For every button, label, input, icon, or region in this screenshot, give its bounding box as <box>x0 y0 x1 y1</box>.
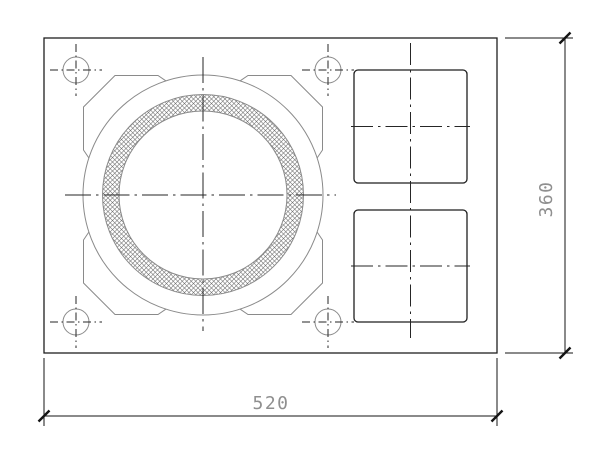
dimension-height: 360 <box>505 33 573 359</box>
cad-drawing-viewport: 520 360 <box>0 0 601 456</box>
center-lines <box>50 43 470 348</box>
engineering-drawing-canvas: 520 360 <box>0 0 601 456</box>
dimension-width: 520 <box>39 358 503 426</box>
width-dimension-label: 520 <box>252 393 289 414</box>
height-dimension-label: 360 <box>536 180 557 217</box>
